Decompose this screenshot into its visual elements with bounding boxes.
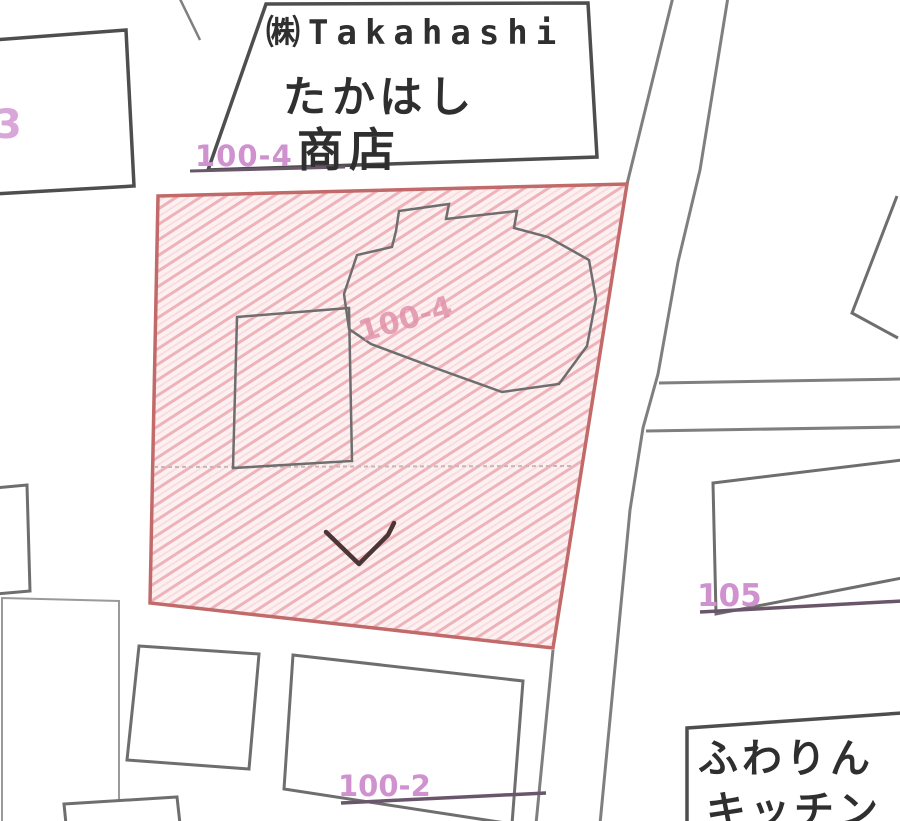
store-name-line1: ㈱Takahashi xyxy=(266,13,564,53)
shop2-name-line2: キッチン xyxy=(706,788,882,821)
store-name-line2: たかはし xyxy=(283,73,477,123)
parcel-number-right: 105 xyxy=(697,578,762,614)
store-name-line3: 商店 xyxy=(297,123,401,177)
shop2-name-line1: ふわりん xyxy=(698,736,874,782)
map-canvas: 3 100-4 100-4 105 100-2 ㈱Takahashi たかはし … xyxy=(0,0,900,821)
building-outline-bottom-left-center xyxy=(127,646,259,769)
cadastral-map-view: 3 100-4 100-4 105 100-2 ㈱Takahashi たかはし … xyxy=(0,0,900,821)
parcel-number-bottom: 100-2 xyxy=(338,769,431,803)
parcel-number-top: 100-4 xyxy=(195,139,293,173)
selected-parcel-highlight[interactable] xyxy=(150,184,627,648)
building-outline-left-small xyxy=(0,485,30,594)
building-outline-left-tall-faint xyxy=(2,598,119,821)
parcel-number-left-partial: 3 xyxy=(0,102,22,148)
